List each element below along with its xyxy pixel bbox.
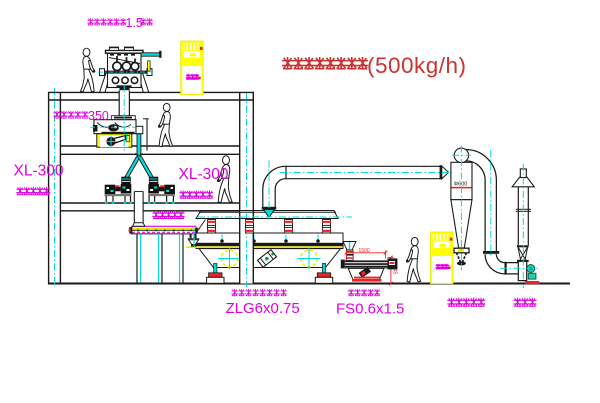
- svg-text:(500kg/h): (500kg/h): [367, 53, 467, 78]
- svg-text:350: 350: [88, 109, 109, 123]
- svg-text:XL-300: XL-300: [179, 166, 229, 183]
- svg-text:FS0.6x1.5: FS0.6x1.5: [336, 301, 404, 318]
- svg-text:ZLG6x0.75: ZLG6x0.75: [226, 300, 300, 317]
- svg-text:1.5: 1.5: [126, 16, 143, 30]
- svg-text:Φ600: Φ600: [454, 182, 468, 188]
- svg-text:1500: 1500: [359, 248, 370, 254]
- svg-text:XL-300: XL-300: [14, 163, 64, 180]
